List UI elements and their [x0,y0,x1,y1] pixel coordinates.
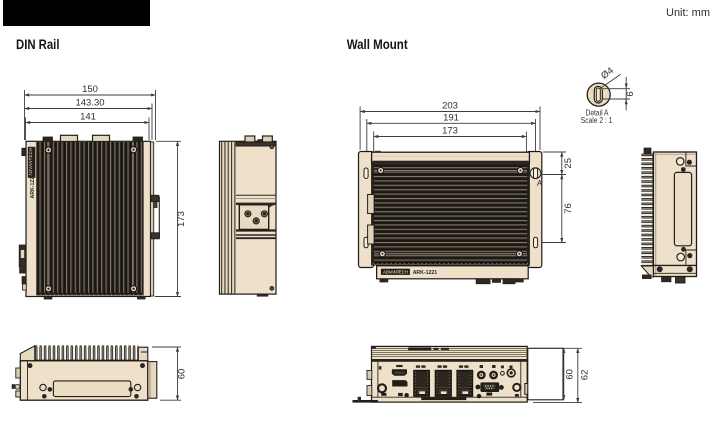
svg-text:ARK-1221: ARK-1221 [413,270,438,276]
svg-text:Unit: mm: Unit: mm [666,7,710,19]
svg-text:Scale 2 : 1: Scale 2 : 1 [581,116,613,125]
svg-text:191: 191 [443,112,459,123]
svg-text:150: 150 [82,84,98,95]
svg-text:25: 25 [563,158,574,169]
svg-text:141: 141 [80,112,96,123]
svg-text:6: 6 [625,91,636,96]
svg-text:A: A [537,179,543,188]
svg-text:ADVANTECH: ADVANTECH [383,270,408,275]
svg-text:DIN Rail: DIN Rail [16,36,60,52]
svg-text:60: 60 [565,369,576,380]
svg-text:ARK-1221: ARK-1221 [30,174,36,199]
svg-text:203: 203 [442,101,458,112]
svg-text:60: 60 [176,369,187,380]
svg-text:ADVANTECH: ADVANTECH [28,148,33,176]
svg-text:Wall Mount: Wall Mount [347,36,408,52]
svg-text:76: 76 [563,203,574,214]
svg-text:62: 62 [580,370,591,381]
svg-text:143.30: 143.30 [75,98,104,109]
svg-text:173: 173 [176,211,187,227]
svg-text:173: 173 [442,126,458,137]
